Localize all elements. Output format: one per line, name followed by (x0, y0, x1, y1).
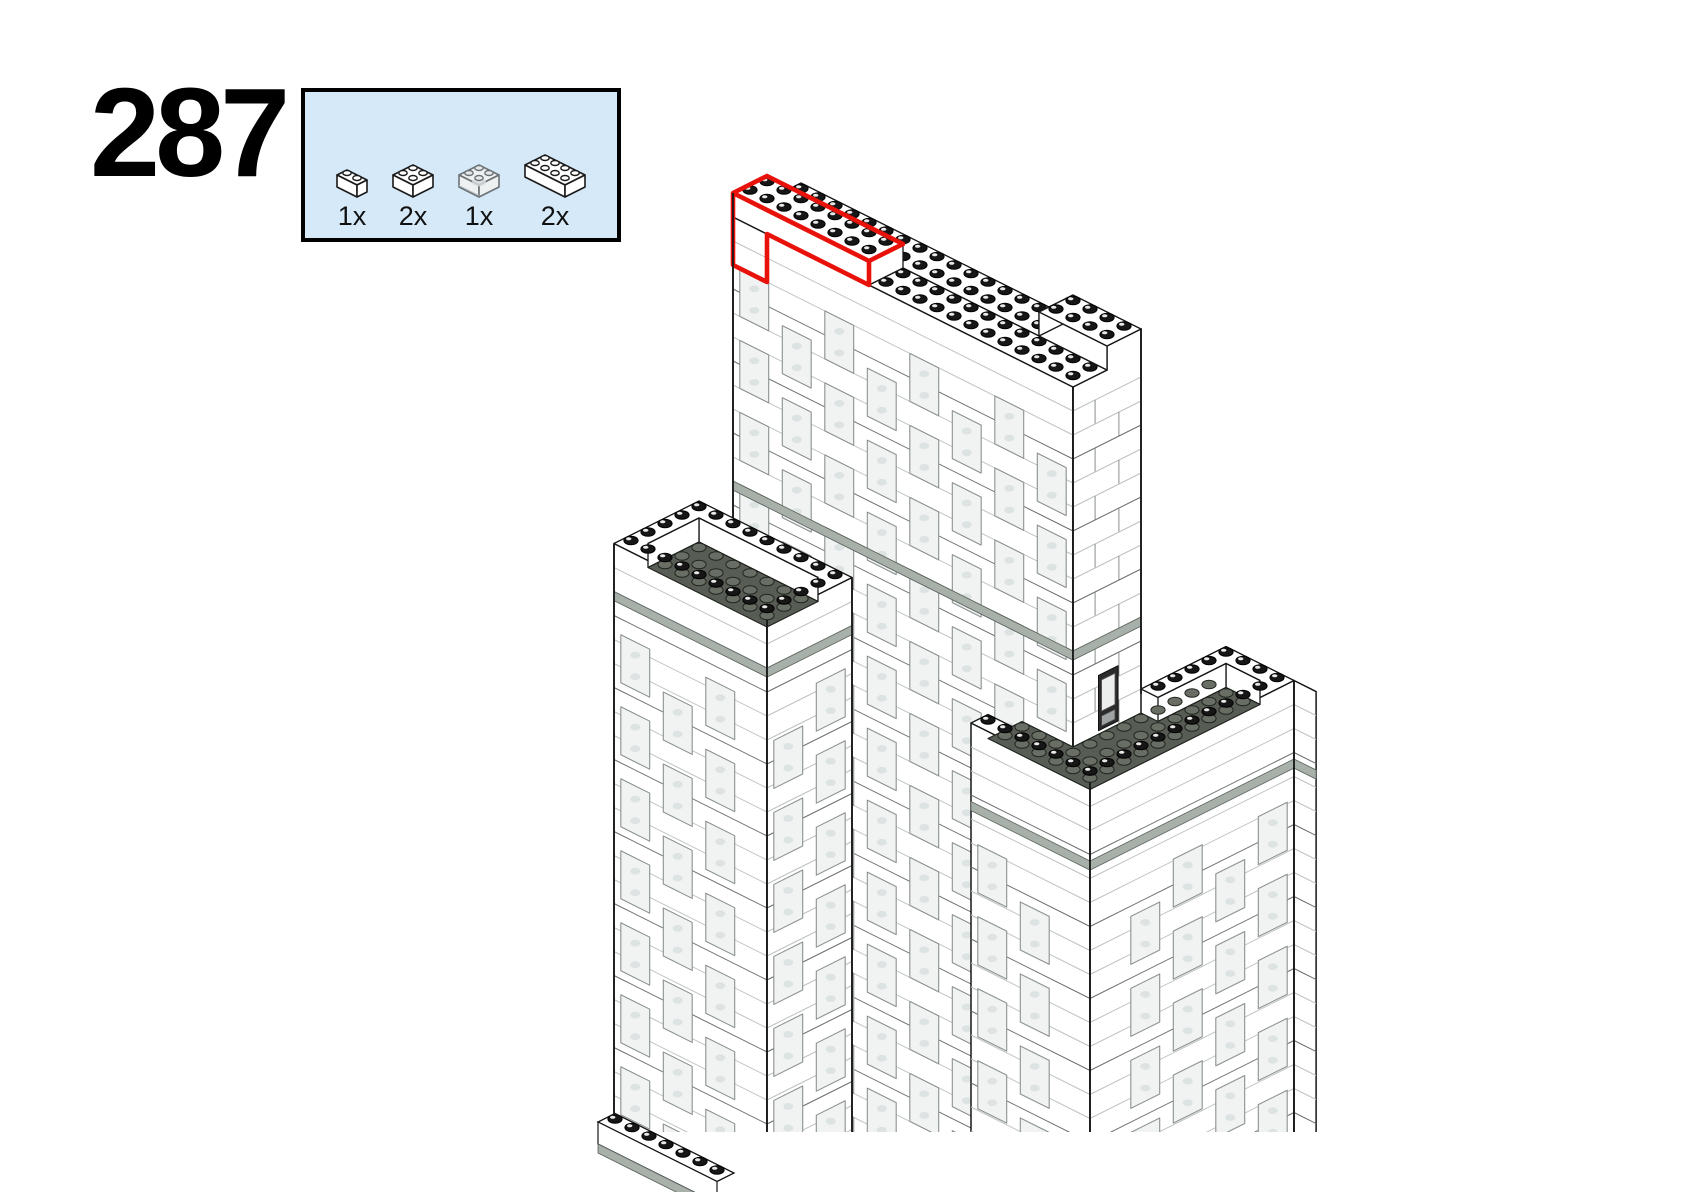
building-illustration (0, 0, 1684, 1192)
roof-door (1099, 666, 1119, 731)
instruction-page: 287 1x2x1x2x (0, 0, 1684, 1192)
right-roof-terrace (971, 647, 1316, 1192)
left-roof-terrace (614, 501, 852, 1192)
building-main (614, 176, 1316, 1192)
